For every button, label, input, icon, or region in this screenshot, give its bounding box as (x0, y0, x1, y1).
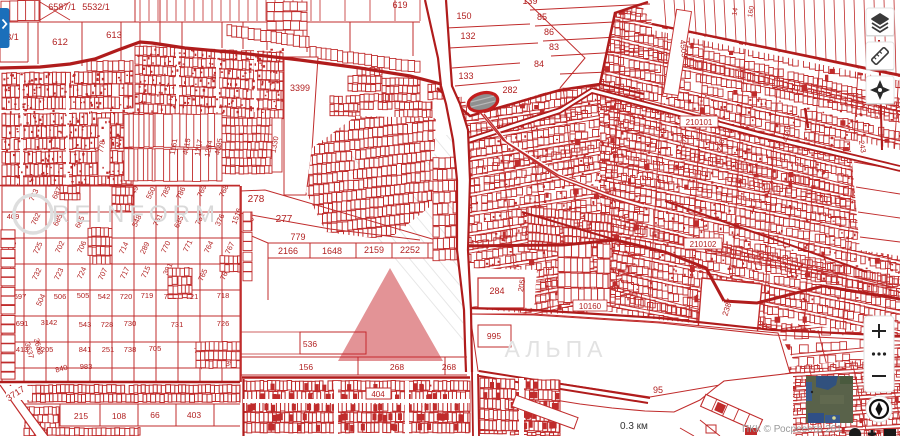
svg-text:268: 268 (390, 362, 404, 372)
svg-text:779: 779 (290, 232, 305, 242)
svg-text:132: 132 (460, 31, 475, 41)
svg-text:403: 403 (187, 410, 201, 420)
svg-text:284: 284 (489, 286, 504, 296)
svg-text:718: 718 (217, 291, 230, 300)
svg-text:731: 731 (171, 320, 184, 329)
svg-text:210102: 210102 (690, 240, 717, 249)
svg-text:404: 404 (371, 390, 385, 399)
svg-text:139: 139 (522, 0, 537, 6)
svg-text:2166: 2166 (278, 246, 298, 256)
svg-text:282: 282 (502, 85, 517, 95)
svg-text:66: 66 (150, 410, 160, 420)
svg-text:108: 108 (112, 411, 126, 421)
svg-text:ПКК © Росреестр 201: ПКК © Росреестр 201 (742, 424, 842, 435)
svg-text:726: 726 (217, 319, 230, 328)
svg-text:691: 691 (16, 319, 29, 328)
svg-text:505: 505 (77, 291, 90, 300)
svg-text:983: 983 (80, 362, 93, 371)
svg-text:133: 133 (458, 71, 473, 81)
svg-text:0.3 км: 0.3 км (620, 421, 648, 432)
svg-text:210101: 210101 (686, 118, 713, 127)
svg-text:705: 705 (149, 344, 162, 353)
svg-text:150: 150 (456, 11, 471, 21)
svg-text:14: 14 (731, 7, 739, 16)
svg-text:84: 84 (534, 59, 544, 69)
svg-text:697: 697 (14, 292, 27, 301)
svg-text:738: 738 (124, 345, 137, 354)
svg-text:1648: 1648 (322, 246, 342, 256)
svg-text:841: 841 (79, 345, 92, 354)
svg-text:613: 613 (106, 30, 122, 41)
svg-text:86: 86 (544, 27, 554, 37)
svg-text:619: 619 (392, 0, 407, 10)
svg-text:268: 268 (442, 362, 456, 372)
svg-text:2252: 2252 (400, 245, 420, 255)
svg-text:506: 506 (54, 292, 67, 301)
svg-text:АЛЬПА: АЛЬПА (505, 336, 608, 362)
svg-text:3399: 3399 (290, 83, 310, 93)
svg-text:543: 543 (79, 320, 92, 329)
svg-text:10160: 10160 (579, 302, 602, 311)
svg-text:536: 536 (303, 339, 317, 349)
svg-text:95: 95 (653, 385, 663, 395)
svg-text:612: 612 (52, 37, 68, 48)
svg-text:83: 83 (549, 42, 559, 52)
svg-text:5532/1: 5532/1 (82, 2, 110, 12)
svg-text:730: 730 (124, 319, 137, 328)
svg-text:156: 156 (299, 362, 313, 372)
svg-text:6587/1: 6587/1 (48, 2, 76, 12)
svg-text:215: 215 (74, 411, 88, 421)
svg-text:REINFORM: REINFORM (52, 201, 220, 228)
svg-text:995: 995 (487, 331, 501, 341)
svg-text:251: 251 (102, 345, 115, 354)
svg-text:720: 720 (120, 292, 133, 301)
svg-text:3142: 3142 (41, 318, 58, 327)
svg-text:2159: 2159 (364, 245, 384, 255)
svg-text:728: 728 (101, 320, 114, 329)
svg-text:278: 278 (248, 194, 265, 205)
svg-text:277: 277 (276, 214, 293, 225)
svg-text:719: 719 (141, 291, 154, 300)
svg-text:85: 85 (537, 12, 547, 22)
svg-text:542: 542 (98, 292, 111, 301)
